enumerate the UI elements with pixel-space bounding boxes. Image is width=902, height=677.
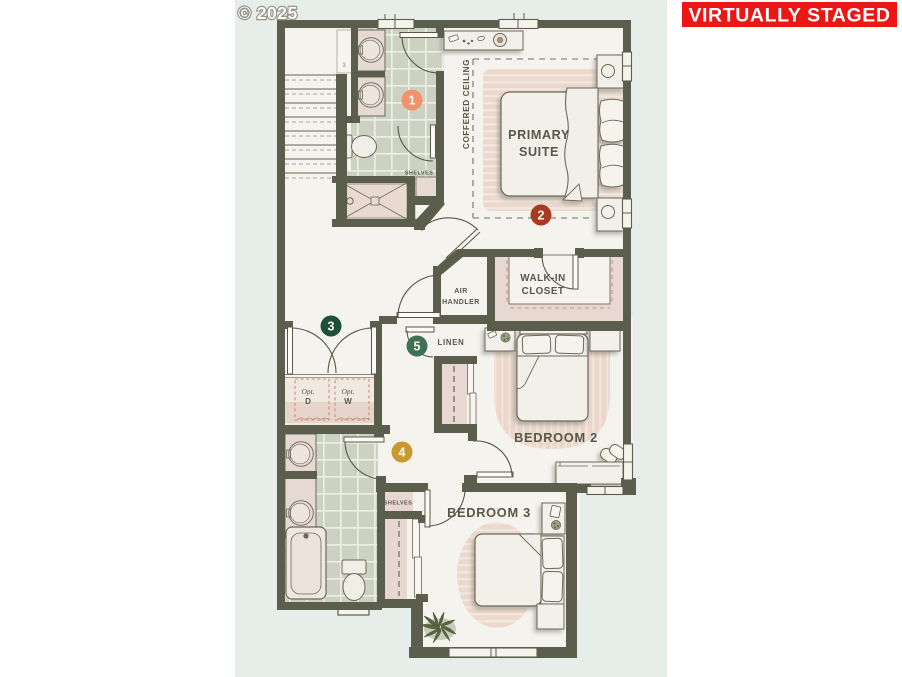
svg-text:AIR: AIR: [454, 288, 468, 295]
svg-text:W: W: [344, 397, 352, 406]
svg-text:LINEN: LINEN: [438, 338, 465, 347]
svg-text:VIRTUALLY STAGED: VIRTUALLY STAGED: [688, 5, 890, 27]
svg-text:D: D: [305, 397, 311, 406]
svg-text:BEDROOM 3: BEDROOM 3: [447, 505, 531, 520]
svg-text:2: 2: [538, 209, 545, 223]
svg-text:WALK-IN: WALK-IN: [520, 273, 565, 284]
svg-text:SHELVES: SHELVES: [384, 501, 413, 507]
svg-text:CLOSET: CLOSET: [522, 286, 565, 297]
svg-text:PRIMARY: PRIMARY: [508, 128, 570, 142]
svg-text:3: 3: [328, 320, 335, 334]
svg-text:Opt.: Opt.: [341, 387, 354, 396]
svg-text:4: 4: [399, 446, 406, 460]
svg-text:1: 1: [409, 94, 416, 108]
svg-text:5: 5: [414, 340, 421, 354]
svg-text:SUITE: SUITE: [519, 145, 559, 159]
svg-text:HANDLER: HANDLER: [442, 299, 480, 306]
svg-text:Opt.: Opt.: [301, 387, 314, 396]
svg-text:SHELVES: SHELVES: [405, 171, 434, 177]
svg-text:COFFERED CEILING: COFFERED CEILING: [462, 59, 471, 149]
svg-text:BEDROOM 2: BEDROOM 2: [514, 430, 598, 445]
svg-text:© 2025: © 2025: [238, 3, 298, 23]
